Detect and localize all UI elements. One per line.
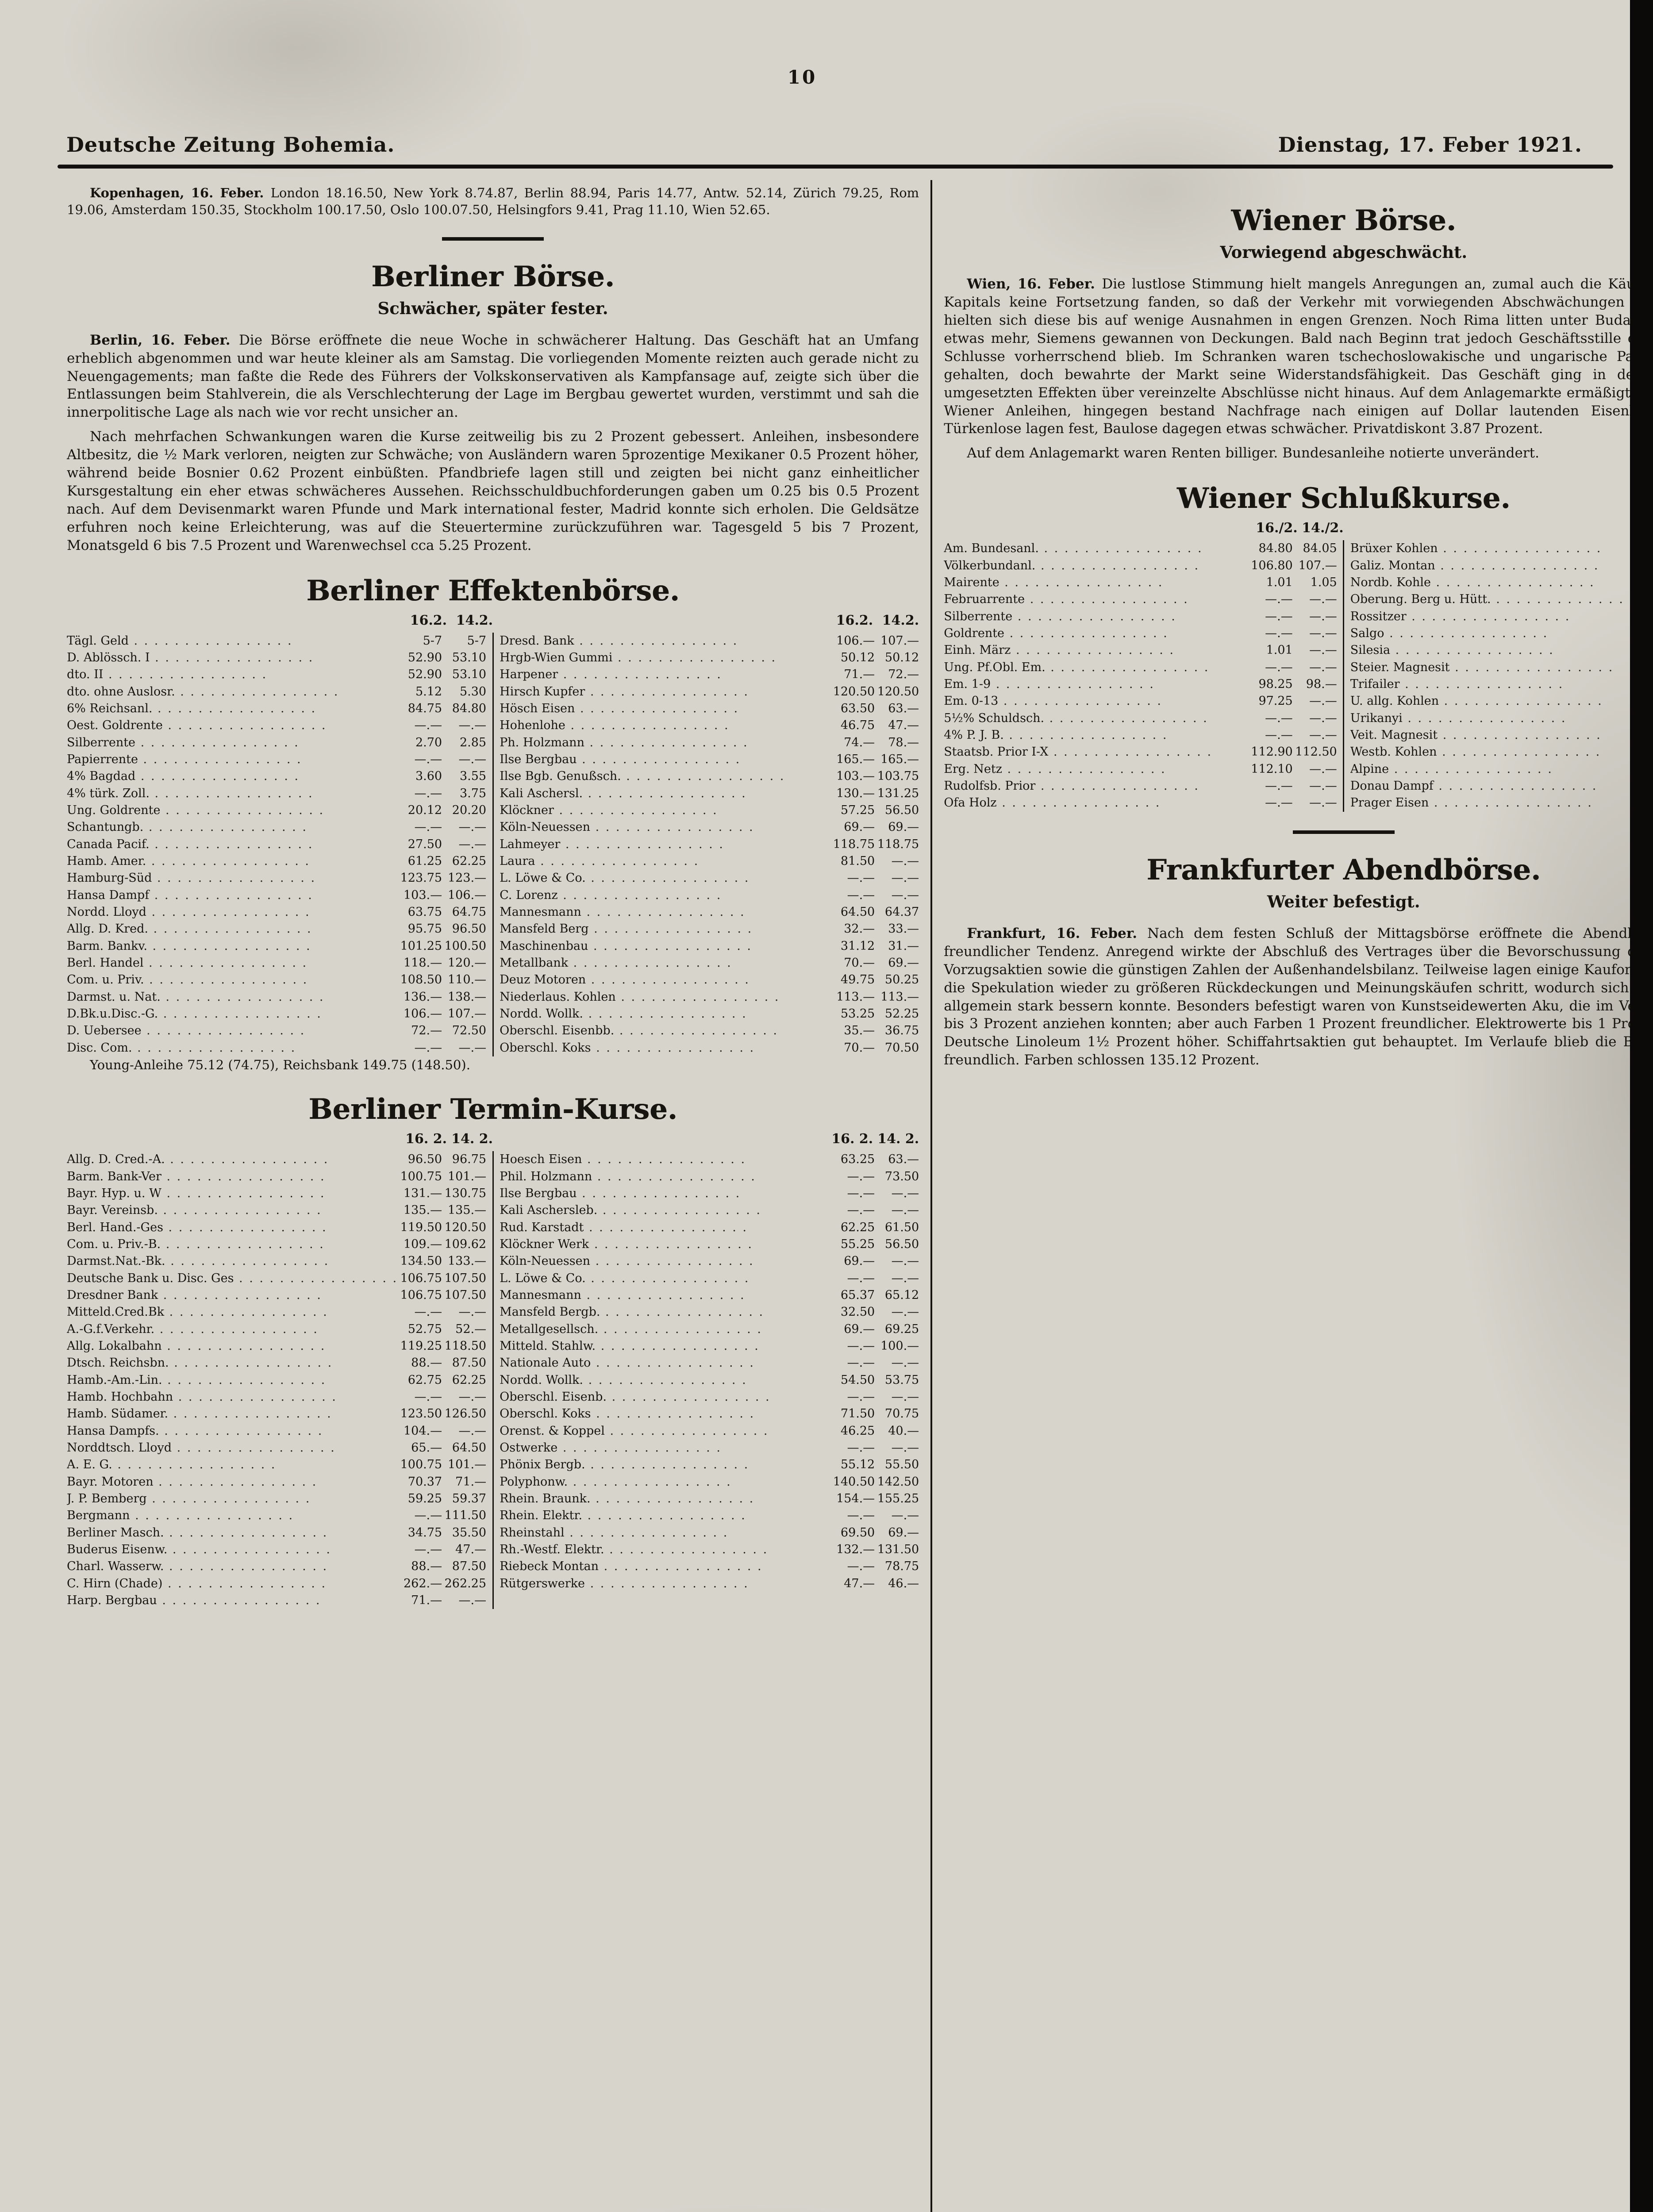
- quote-row: Mitteld. Stahlw.—.—100.—: [500, 1338, 919, 1355]
- quote-row: Oberung. Berg u. Hütt.24.9026.—: [1350, 591, 1653, 608]
- security-name: Hansa Dampf: [67, 887, 398, 904]
- paragraph: Young-Anleihe 75.12 (74.75), Reichsbank …: [67, 1056, 919, 1073]
- security-name: A.-G.f.Verkehr.: [67, 1321, 398, 1338]
- security-name: Salgo: [1350, 625, 1653, 642]
- price-previous: 55.50: [875, 1456, 919, 1473]
- security-name: Silberrente: [67, 734, 398, 751]
- price-current: 88.—: [398, 1355, 442, 1371]
- security-name: Oberschl. Koks: [500, 1040, 830, 1056]
- price-previous: 61.50: [875, 1219, 919, 1236]
- quote-row: Staatsb. Prior I-X112.90112.50: [944, 744, 1337, 760]
- security-name: Hansa Dampfs.: [67, 1423, 398, 1440]
- security-name: Oest. Goldrente: [67, 717, 398, 734]
- section-subheading: Schwächer, später fester.: [67, 299, 919, 318]
- security-name: Brüxer Kohlen: [1350, 540, 1653, 557]
- price-current: 131.—: [398, 1185, 442, 1202]
- security-name: Köln-Neuessen: [500, 819, 830, 836]
- price-current: —.—: [1249, 710, 1293, 727]
- quote-row: Rütgerswerke47.—46.—: [500, 1575, 919, 1592]
- column-1: Kopenhagen, 16. Feber. London 18.16.50, …: [55, 180, 932, 2212]
- price-current: 69.—: [830, 1321, 875, 1338]
- quote-row: Mitteld.Cred.Bk—.——.—: [67, 1304, 486, 1321]
- quote-row: Hohenlohe46.7547.—: [500, 717, 919, 734]
- security-name: Mitteld. Stahlw.: [500, 1338, 830, 1355]
- quote-row: Hamb. Amer.61.2562.25: [67, 853, 486, 870]
- price-current: 88.—: [398, 1558, 442, 1575]
- scan-edge-right: [1630, 0, 1653, 2212]
- date-label: 16./2.: [1252, 520, 1298, 536]
- price-current: 130.—: [830, 785, 875, 802]
- quote-row: Ofa Holz—.——.—: [944, 795, 1337, 811]
- security-name: D. Ablössch. I: [67, 649, 398, 666]
- price-current: 136.—: [398, 989, 442, 1006]
- section-heading: Berliner Termin-Kurse.: [67, 1094, 919, 1124]
- quote-row: 4% Bagdad3.603.55: [67, 768, 486, 785]
- price-previous: 106.—: [442, 887, 486, 904]
- quote-row: Oberschl. Eisenbb.35.—36.75: [500, 1022, 919, 1039]
- price-previous: 113.—: [875, 989, 919, 1006]
- security-name: Bayr. Hyp. u. W: [67, 1185, 398, 1202]
- security-name: Dresd. Bank: [500, 633, 830, 649]
- price-previous: 123.—: [442, 870, 486, 887]
- price-current: 3.60: [398, 768, 442, 785]
- price-previous: —.—: [875, 1507, 919, 1524]
- price-previous: 110.—: [442, 972, 486, 988]
- security-name: Einh. März: [944, 642, 1249, 659]
- price-previous: —.—: [875, 870, 919, 887]
- section-heading: Berliner Effektenbörse.: [67, 576, 919, 606]
- quote-row: Allg. D. Kred.95.7596.50: [67, 921, 486, 937]
- price-current: —.—: [830, 870, 875, 887]
- security-name: L. Löwe & Co.: [500, 1270, 830, 1287]
- price-previous: 98.—: [1293, 676, 1337, 693]
- quote-row: Hirsch Kupfer120.50120.50: [500, 684, 919, 700]
- quote-row: Mairente1.011.05: [944, 574, 1337, 591]
- price-current: 97.25: [1249, 693, 1293, 710]
- security-name: Canada Pacif.: [67, 836, 398, 853]
- price-previous: 56.50: [875, 1236, 919, 1253]
- price-previous: 133.—: [442, 1253, 486, 1270]
- price-current: 31.12: [830, 938, 875, 955]
- security-name: Deutsche Bank u. Disc. Ges: [67, 1270, 398, 1287]
- quote-row: Nationale Auto—.——.—: [500, 1355, 919, 1371]
- quote-row: Hansa Dampfs.104.——.—: [67, 1423, 486, 1440]
- price-previous: 87.50: [442, 1355, 486, 1371]
- price-previous: —.—: [1293, 727, 1337, 744]
- price-previous: 69.—: [875, 1525, 919, 1541]
- security-name: Rhein. Braunk.: [500, 1490, 830, 1507]
- price-previous: —.—: [875, 1440, 919, 1456]
- date-label: 14. 2.: [447, 1131, 493, 1147]
- price-current: 72.—: [398, 1022, 442, 1039]
- price-previous: 31.—: [875, 938, 919, 955]
- date-label: 16. 2.: [401, 1131, 447, 1147]
- quote-row: Oberschl. Koks70.—70.50: [500, 1040, 919, 1056]
- security-name: Völkerbundanl.: [944, 557, 1249, 574]
- security-name: Ilse Bergbau: [500, 1185, 830, 1202]
- security-name: Hoesch Eisen: [500, 1151, 830, 1168]
- security-name: Schantungb.: [67, 819, 398, 836]
- price-current: 108.50: [398, 972, 442, 988]
- price-current: —.—: [830, 1270, 875, 1287]
- date-header-half: 16./2.14./2.: [944, 520, 1344, 536]
- quote-row: A.-G.f.Verkehr.52.7552.—: [67, 1321, 486, 1338]
- price-previous: 50.25: [875, 972, 919, 988]
- security-name: Harpener: [500, 666, 830, 683]
- paragraph: Kopenhagen, 16. Feber. London 18.16.50, …: [67, 184, 919, 219]
- quote-row: Deutsche Bank u. Disc. Ges106.75107.50: [67, 1270, 486, 1287]
- price-previous: 64.50: [442, 1440, 486, 1456]
- price-current: —.—: [830, 1355, 875, 1371]
- masthead-rule: [58, 165, 1613, 169]
- security-name: Hösch Eisen: [500, 700, 830, 717]
- quote-row: 6% Reichsanl.84.7584.80: [67, 700, 486, 717]
- price-previous: 64.75: [442, 904, 486, 921]
- price-previous: 59.37: [442, 1490, 486, 1507]
- price-current: 100.75: [398, 1168, 442, 1185]
- security-name: Steier. Magnesit: [1350, 659, 1653, 676]
- security-name: Urikanyi: [1350, 710, 1653, 727]
- quote-row: Darmst.Nat.-Bk.134.50133.—: [67, 1253, 486, 1270]
- date-header-half: 16. 2.14. 2.: [67, 1131, 493, 1147]
- quote-row: Köln-Neuessen69.—69.—: [500, 819, 919, 836]
- security-name: Ostwerke: [500, 1440, 830, 1456]
- price-current: —.—: [830, 1202, 875, 1219]
- price-current: —.—: [830, 1558, 875, 1575]
- quote-row: Nordd. Wollk.53.2552.25: [500, 1006, 919, 1022]
- security-name: A. E. G.: [67, 1456, 398, 1473]
- quote-row: Alpine19.2519.90: [1350, 761, 1653, 778]
- security-name: Metallbank: [500, 955, 830, 972]
- security-name: Mitteld.Cred.Bk: [67, 1304, 398, 1321]
- security-name: Klöckner: [500, 802, 830, 819]
- price-previous: 36.75: [875, 1022, 919, 1039]
- quote-row: Polyphonw.140.50142.50: [500, 1474, 919, 1490]
- price-previous: 52.25: [875, 1006, 919, 1022]
- quote-row: Barm. Bankv.101.25100.50: [67, 938, 486, 955]
- price-previous: —.—: [442, 717, 486, 734]
- price-previous: 107.—: [1293, 557, 1337, 574]
- quote-row: A. E. G.100.75101.—: [67, 1456, 486, 1473]
- quote-row: Hansa Dampf103.—106.—: [67, 887, 486, 904]
- price-current: 35.—: [830, 1022, 875, 1039]
- quote-row: Einh. März1.01—.—: [944, 642, 1337, 659]
- paragraph: Nach mehrfachen Schwankungen waren die K…: [67, 428, 919, 554]
- price-current: 135.—: [398, 1202, 442, 1219]
- security-name: Barm. Bank-Ver: [67, 1168, 398, 1185]
- price-previous: 135.—: [442, 1202, 486, 1219]
- price-current: 20.12: [398, 802, 442, 819]
- security-name: Em. 0-13: [944, 693, 1249, 710]
- price-current: 55.25: [830, 1236, 875, 1253]
- price-previous: 103.75: [875, 768, 919, 785]
- security-name: Darmst.Nat.-Bk.: [67, 1253, 398, 1270]
- quote-row: Dtsch. Reichsbn.88.—87.50: [67, 1355, 486, 1371]
- price-previous: 130.75: [442, 1185, 486, 1202]
- price-current: 262.—: [398, 1575, 442, 1592]
- quote-row: Darmst. u. Nat.136.—138.—: [67, 989, 486, 1006]
- security-name: 5½% Schuldsch.: [944, 710, 1249, 727]
- security-name: C. Hirn (Chade): [67, 1575, 398, 1592]
- price-previous: —.—: [442, 1592, 486, 1609]
- price-previous: 35.50: [442, 1525, 486, 1541]
- price-current: —.—: [398, 785, 442, 802]
- price-current: 63.50: [830, 700, 875, 717]
- price-previous: 2.85: [442, 734, 486, 751]
- price-previous: —.—: [1293, 778, 1337, 795]
- quote-row: 4% P. J. B.—.——.—: [944, 727, 1337, 744]
- price-current: 1.01: [1249, 574, 1293, 591]
- security-name: Ilse Bergbau: [500, 751, 830, 768]
- price-previous: —.—: [1293, 625, 1337, 642]
- price-current: 32.—: [830, 921, 875, 937]
- price-current: 112.10: [1249, 761, 1293, 778]
- price-current: —.—: [830, 887, 875, 904]
- quote-row: Brüxer Kohlen—.—263.—: [1350, 540, 1653, 557]
- quote-row: Rh.-Westf. Elektr.132.—131.50: [500, 1541, 919, 1558]
- price-current: 53.25: [830, 1006, 875, 1022]
- date-label: 14.2.: [873, 613, 919, 628]
- price-previous: 40.—: [875, 1423, 919, 1440]
- quote-row: 4% türk. Zoll.—.—3.75: [67, 785, 486, 802]
- security-name: Silesia: [1350, 642, 1653, 659]
- security-name: Kali Aschersleb.: [500, 1202, 830, 1219]
- quote-row: Klöckner Werk55.2556.50: [500, 1236, 919, 1253]
- security-name: Berl. Hand.-Ges: [67, 1219, 398, 1236]
- quote-table: Am. Bundesanl.84.8084.05Völkerbundanl.10…: [944, 540, 1653, 811]
- security-name: Köln-Neuessen: [500, 1253, 830, 1270]
- quote-row: L. Löwe & Co.—.——.—: [500, 870, 919, 887]
- security-name: Polyphonw.: [500, 1474, 830, 1490]
- price-previous: 70.75: [875, 1406, 919, 1422]
- price-current: 118.—: [398, 955, 442, 972]
- quote-row: Em. 1-998.2598.—: [944, 676, 1337, 693]
- price-previous: 72.—: [875, 666, 919, 683]
- price-previous: —.—: [442, 1389, 486, 1406]
- quote-row: Orenst. & Koppel46.2540.—: [500, 1423, 919, 1440]
- quote-row: Galiz. Montan6.906.75: [1350, 557, 1653, 574]
- price-current: 100.75: [398, 1456, 442, 1473]
- security-name: Staatsb. Prior I-X: [944, 744, 1249, 760]
- security-name: L. Löwe & Co.: [500, 870, 830, 887]
- security-name: Hamb. Hochbahn: [67, 1389, 398, 1406]
- quote-row: Goldrente—.——.—: [944, 625, 1337, 642]
- price-previous: —.—: [1293, 608, 1337, 625]
- date-label: 14.2.: [447, 613, 493, 628]
- quote-row: Silesia—.——.—: [1350, 642, 1653, 659]
- price-current: —.—: [1249, 659, 1293, 676]
- date-label: 14./2.: [1298, 520, 1344, 536]
- table-date-header: 16. 2.14. 2.16. 2.14. 2.: [67, 1131, 919, 1147]
- price-previous: 70.50: [875, 1040, 919, 1056]
- quote-row: J. P. Bemberg59.2559.37: [67, 1490, 486, 1507]
- price-previous: 50.12: [875, 649, 919, 666]
- price-previous: 138.—: [442, 989, 486, 1006]
- quote-row: Em. 0-1397.25—.—: [944, 693, 1337, 710]
- price-current: 55.12: [830, 1456, 875, 1473]
- price-current: —.—: [1249, 625, 1293, 642]
- quote-row: Rud. Karstadt62.2561.50: [500, 1219, 919, 1236]
- price-previous: 69.—: [875, 955, 919, 972]
- price-previous: 262.25: [442, 1575, 486, 1592]
- price-previous: 112.50: [1293, 744, 1337, 760]
- quote-row: dto. ohne Auslosr.5.125.30: [67, 684, 486, 700]
- security-name: Dresdner Bank: [67, 1287, 398, 1304]
- quote-row: Hamb. Südamer.123.50126.50: [67, 1406, 486, 1422]
- price-previous: —.—: [875, 1355, 919, 1371]
- quote-row: Trifailer42.5043.25: [1350, 676, 1653, 693]
- price-previous: 65.12: [875, 1287, 919, 1304]
- price-previous: —.—: [1293, 710, 1337, 727]
- security-name: Maschinenbau: [500, 938, 830, 955]
- price-current: —.—: [398, 751, 442, 768]
- quote-row: Ilse Bergbau—.——.—: [500, 1185, 919, 1202]
- security-name: Am. Bundesanl.: [944, 540, 1249, 557]
- security-name: Allg. Lokalbahn: [67, 1338, 398, 1355]
- security-name: Donau Dampf: [1350, 778, 1653, 795]
- price-previous: 63.—: [875, 1151, 919, 1168]
- quote-row: Bayr. Motoren70.3771.—: [67, 1474, 486, 1490]
- security-name: Com. u. Priv.: [67, 972, 398, 988]
- quote-row: Oberschl. Koks71.5070.75: [500, 1406, 919, 1422]
- price-previous: —.—: [1293, 642, 1337, 659]
- price-previous: 111.50: [442, 1507, 486, 1524]
- price-current: 5.12: [398, 684, 442, 700]
- security-name: Hohenlohe: [500, 717, 830, 734]
- security-name: Niederlaus. Kohlen: [500, 989, 830, 1006]
- price-current: 104.—: [398, 1423, 442, 1440]
- price-current: —.—: [398, 717, 442, 734]
- quote-row: Harp. Bergbau71.——.—: [67, 1592, 486, 1609]
- price-previous: 52.—: [442, 1321, 486, 1338]
- quote-row: Steier. Magnesit55.7557.—: [1350, 659, 1653, 676]
- quote-row: 5½% Schuldsch.—.——.—: [944, 710, 1337, 727]
- price-previous: 53.10: [442, 666, 486, 683]
- security-name: Rütgerswerke: [500, 1575, 830, 1592]
- quote-row: Klöckner57.2556.50: [500, 802, 919, 819]
- security-name: Nordd. Lloyd: [67, 904, 398, 921]
- price-current: 65.—: [398, 1440, 442, 1456]
- price-current: 59.25: [398, 1490, 442, 1507]
- quote-row: Tägl. Geld5-75-7: [67, 633, 486, 649]
- price-previous: 120.50: [442, 1219, 486, 1236]
- security-name: Ph. Holzmann: [500, 734, 830, 751]
- price-current: 112.90: [1249, 744, 1293, 760]
- quote-row: Metallgesellsch.69.—69.25: [500, 1321, 919, 1338]
- quote-row: Phönix Bergb.55.1255.50: [500, 1456, 919, 1473]
- quote-row: Rhein. Elektr.—.——.—: [500, 1507, 919, 1524]
- security-name: Mansfeld Bergb.: [500, 1304, 830, 1321]
- date-header-half: 16.2.14.2.: [67, 613, 493, 628]
- quote-row: Phil. Holzmann—.—73.50: [500, 1168, 919, 1185]
- date-label: 16. 2.: [827, 1131, 873, 1147]
- security-name: Berl. Handel: [67, 955, 398, 972]
- paragraph-lead: Berlin, 16. Feber.: [90, 332, 239, 348]
- quote-row: D.Bk.u.Disc.-G.106.—107.—: [67, 1006, 486, 1022]
- price-previous: 107.—: [875, 633, 919, 649]
- quote-row: Völkerbundanl.106.80107.—: [944, 557, 1337, 574]
- quote-row: Disc. Com.—.——.—: [67, 1040, 486, 1056]
- security-name: Ung. Goldrente: [67, 802, 398, 819]
- security-name: D. Uebersee: [67, 1022, 398, 1039]
- price-current: 69.—: [830, 1253, 875, 1270]
- quote-row: Deuz Motoren49.7550.25: [500, 972, 919, 988]
- security-name: Rheinstahl: [500, 1525, 830, 1541]
- price-previous: 100.50: [442, 938, 486, 955]
- security-name: Hamb. Amer.: [67, 853, 398, 870]
- price-previous: 3.55: [442, 768, 486, 785]
- quote-row: D. Ablössch. I52.9053.10: [67, 649, 486, 666]
- date-label: 16.2.: [401, 613, 447, 628]
- price-previous: —.—: [1293, 761, 1337, 778]
- date-label: 16.2.: [827, 613, 873, 628]
- price-current: 50.12: [830, 649, 875, 666]
- price-previous: 3.75: [442, 785, 486, 802]
- security-name: Hamb. Südamer.: [67, 1406, 398, 1422]
- price-current: 95.75: [398, 921, 442, 937]
- quote-row: Ilse Bgb. Genußsch.103.—103.75: [500, 768, 919, 785]
- price-previous: 118.75: [875, 836, 919, 853]
- price-current: —.—: [398, 1507, 442, 1524]
- quote-row: L. Löwe & Co.—.——.—: [500, 1270, 919, 1287]
- quote-row: Charl. Wasserw.88.—87.50: [67, 1558, 486, 1575]
- newspaper-title: Deutsche Zeitung Bohemia.: [66, 133, 395, 157]
- security-name: Mannesmann: [500, 1287, 830, 1304]
- price-current: 46.75: [830, 717, 875, 734]
- price-previous: 107.50: [442, 1270, 486, 1287]
- quote-row: Köln-Neuessen69.——.—: [500, 1253, 919, 1270]
- page-number: 10: [0, 66, 1604, 88]
- price-current: 96.50: [398, 1151, 442, 1168]
- quote-row: Canada Pacif.27.50—.—: [67, 836, 486, 853]
- quote-row: Oberschl. Eisenb.—.——.—: [500, 1389, 919, 1406]
- security-name: 4% türk. Zoll.: [67, 785, 398, 802]
- price-current: 106.—: [398, 1006, 442, 1022]
- price-previous: 78.—: [875, 734, 919, 751]
- security-name: Goldrente: [944, 625, 1249, 642]
- price-previous: 64.37: [875, 904, 919, 921]
- quote-row: Dresd. Bank106.—107.—: [500, 633, 919, 649]
- price-previous: 101.—: [442, 1456, 486, 1473]
- date-header-half: 16./2.14./2.: [1344, 520, 1653, 536]
- security-name: Hamburg-Süd: [67, 870, 398, 887]
- price-previous: —.—: [1293, 693, 1337, 710]
- price-current: 106.75: [398, 1287, 442, 1304]
- price-previous: —.—: [875, 1304, 919, 1321]
- security-name: Darmst. u. Nat.: [67, 989, 398, 1006]
- security-name: Ofa Holz: [944, 795, 1249, 811]
- price-previous: 100.—: [875, 1338, 919, 1355]
- security-name: Mannesmann: [500, 904, 830, 921]
- price-current: 119.50: [398, 1219, 442, 1236]
- quote-row: Erg. Netz112.10—.—: [944, 761, 1337, 778]
- quote-row: Hoesch Eisen63.2563.—: [500, 1151, 919, 1168]
- quote-row: Allg. D. Cred.-A.96.5096.75: [67, 1151, 486, 1168]
- price-current: 34.75: [398, 1525, 442, 1541]
- price-previous: —.—: [1293, 591, 1337, 608]
- section-subheading: Vorwiegend abgeschwächt.: [944, 242, 1653, 262]
- quote-table: Tägl. Geld5-75-7D. Ablössch. I52.9053.10…: [67, 633, 919, 1056]
- price-previous: —.—: [442, 1423, 486, 1440]
- price-current: —.—: [398, 819, 442, 836]
- price-previous: —.—: [1293, 795, 1337, 811]
- price-current: 118.75: [830, 836, 875, 853]
- security-name: Nationale Auto: [500, 1355, 830, 1371]
- security-name: Hirsch Kupfer: [500, 684, 830, 700]
- quote-row: Rheinstahl69.5069.—: [500, 1525, 919, 1541]
- security-name: Riebeck Montan: [500, 1558, 830, 1575]
- price-previous: 47.—: [442, 1541, 486, 1558]
